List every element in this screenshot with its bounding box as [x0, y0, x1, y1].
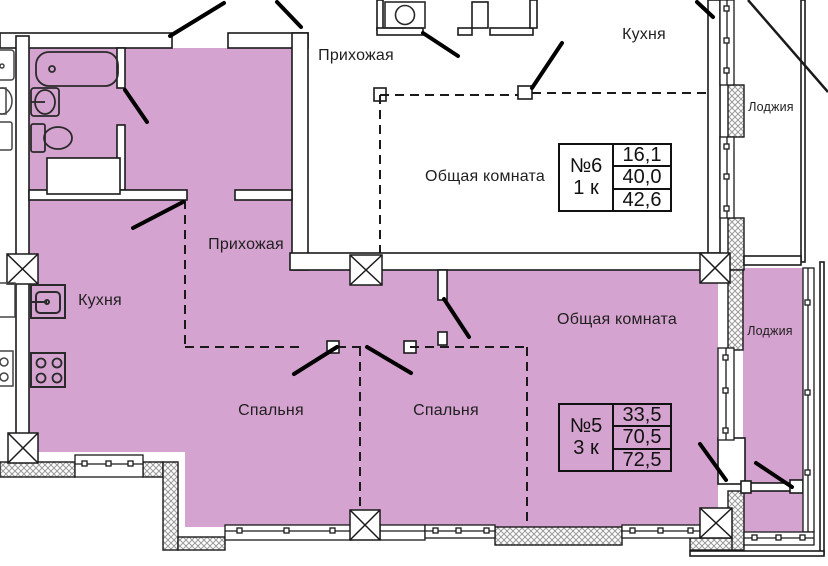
outer-boundary-diagonal — [748, 0, 828, 92]
door-leaf — [472, 2, 488, 28]
apartment-6-id: №6 1 к — [560, 145, 614, 210]
column — [350, 510, 380, 540]
window — [75, 455, 143, 477]
area-usable: 70,5 — [614, 427, 670, 449]
apartment-5-areas: 33,5 70,5 72,5 — [614, 405, 670, 470]
room-label-apt6-hallway: Прихожая — [318, 47, 394, 65]
window — [744, 532, 814, 545]
apartment-6-number: №6 — [570, 156, 603, 178]
window — [803, 268, 814, 532]
floor-plan-page: Прихожая Кухня Общая комната Лоджия Прих… — [0, 0, 828, 566]
room-label-apt5-kitchen: Кухня — [78, 292, 122, 310]
window — [380, 525, 425, 540]
washing-machine — [385, 2, 425, 28]
column — [700, 253, 730, 283]
apartment-6-rooms-count: 1 к — [573, 178, 598, 200]
apartment-5-id: №5 3 к — [560, 405, 614, 470]
room-label-apt5-bedroom-2: Спальня — [413, 402, 479, 420]
room-label-apt5-living: Общая комната — [557, 311, 677, 329]
apartment-5-rooms-count: 3 к — [573, 438, 598, 460]
ventilation-shaft — [47, 158, 120, 194]
apartment-5-info-box[interactable]: №5 3 к 33,5 70,5 72,5 — [558, 403, 672, 472]
window — [718, 348, 734, 440]
area-living: 16,1 — [614, 145, 670, 167]
room-label-apt6-living: Общая комната — [425, 168, 545, 186]
window — [720, 0, 734, 85]
window — [720, 137, 734, 218]
floor-plan-drawing — [0, 0, 828, 566]
area-total: 72,5 — [614, 450, 670, 470]
area-living: 33,5 — [614, 405, 670, 427]
window — [225, 525, 352, 540]
window — [425, 525, 495, 538]
room-label-apt5-bedroom-1: Спальня — [238, 402, 304, 420]
window — [622, 525, 700, 538]
area-usable: 40,0 — [614, 167, 670, 189]
column — [700, 508, 732, 538]
area-total: 42,6 — [614, 190, 670, 210]
room-label-apt6-kitchen: Кухня — [622, 26, 666, 44]
apartment-6-areas: 16,1 40,0 42,6 — [614, 145, 670, 210]
neighbor-fixtures — [0, 50, 15, 386]
room-label-apt6-loggia: Лоджия — [748, 100, 794, 114]
apartment-5-number: №5 — [570, 416, 603, 438]
apartment-6-info-box[interactable]: №6 1 к 16,1 40,0 42,6 — [558, 143, 672, 212]
column — [350, 255, 382, 285]
room-label-apt5-loggia: Лоджия — [747, 324, 793, 338]
room-label-apt5-hallway: Прихожая — [208, 236, 284, 254]
column — [7, 254, 38, 284]
column — [8, 433, 38, 463]
